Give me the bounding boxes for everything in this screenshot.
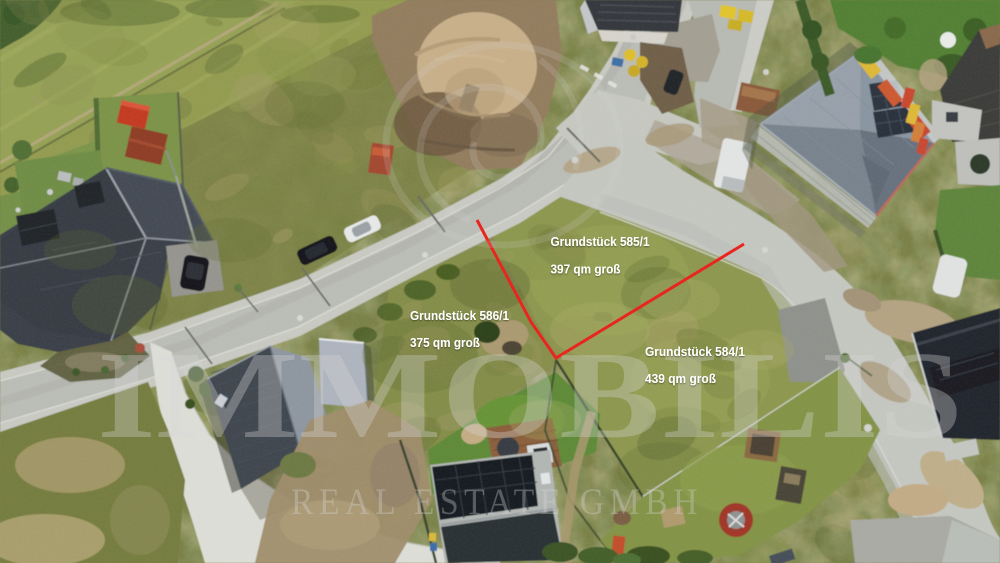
svg-text:439 qm groß: 439 qm groß (645, 371, 716, 386)
svg-text:Grundstück 584/1: Grundstück 584/1 (645, 344, 745, 359)
svg-text:Grundstück 586/1: Grundstück 586/1 (410, 308, 509, 323)
svg-text:Grundstück 585/1: Grundstück 585/1 (551, 234, 650, 249)
svg-text:REAL ESTATE GMBH: REAL ESTATE GMBH (291, 482, 703, 523)
svg-text:397 qm groß: 397 qm groß (551, 262, 621, 277)
svg-text:375 qm groß: 375 qm groß (410, 335, 480, 350)
svg-text:IMMOBILIS: IMMOBILIS (97, 327, 963, 465)
